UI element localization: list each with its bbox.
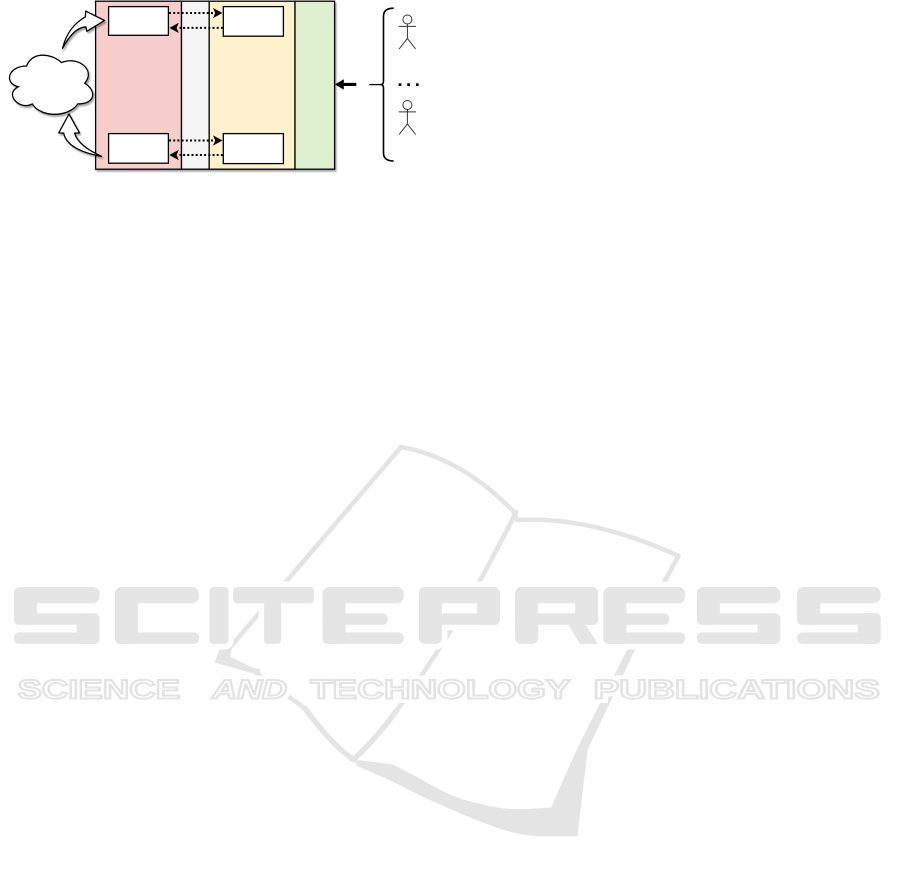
svg-text:PUBLICATIONS: PUBLICATIONS	[594, 675, 881, 705]
svg-text:TECHNOLOGY: TECHNOLOGY	[310, 675, 571, 705]
svg-text:AND: AND	[211, 675, 287, 705]
svg-text:SCIENCE: SCIENCE	[18, 675, 181, 705]
